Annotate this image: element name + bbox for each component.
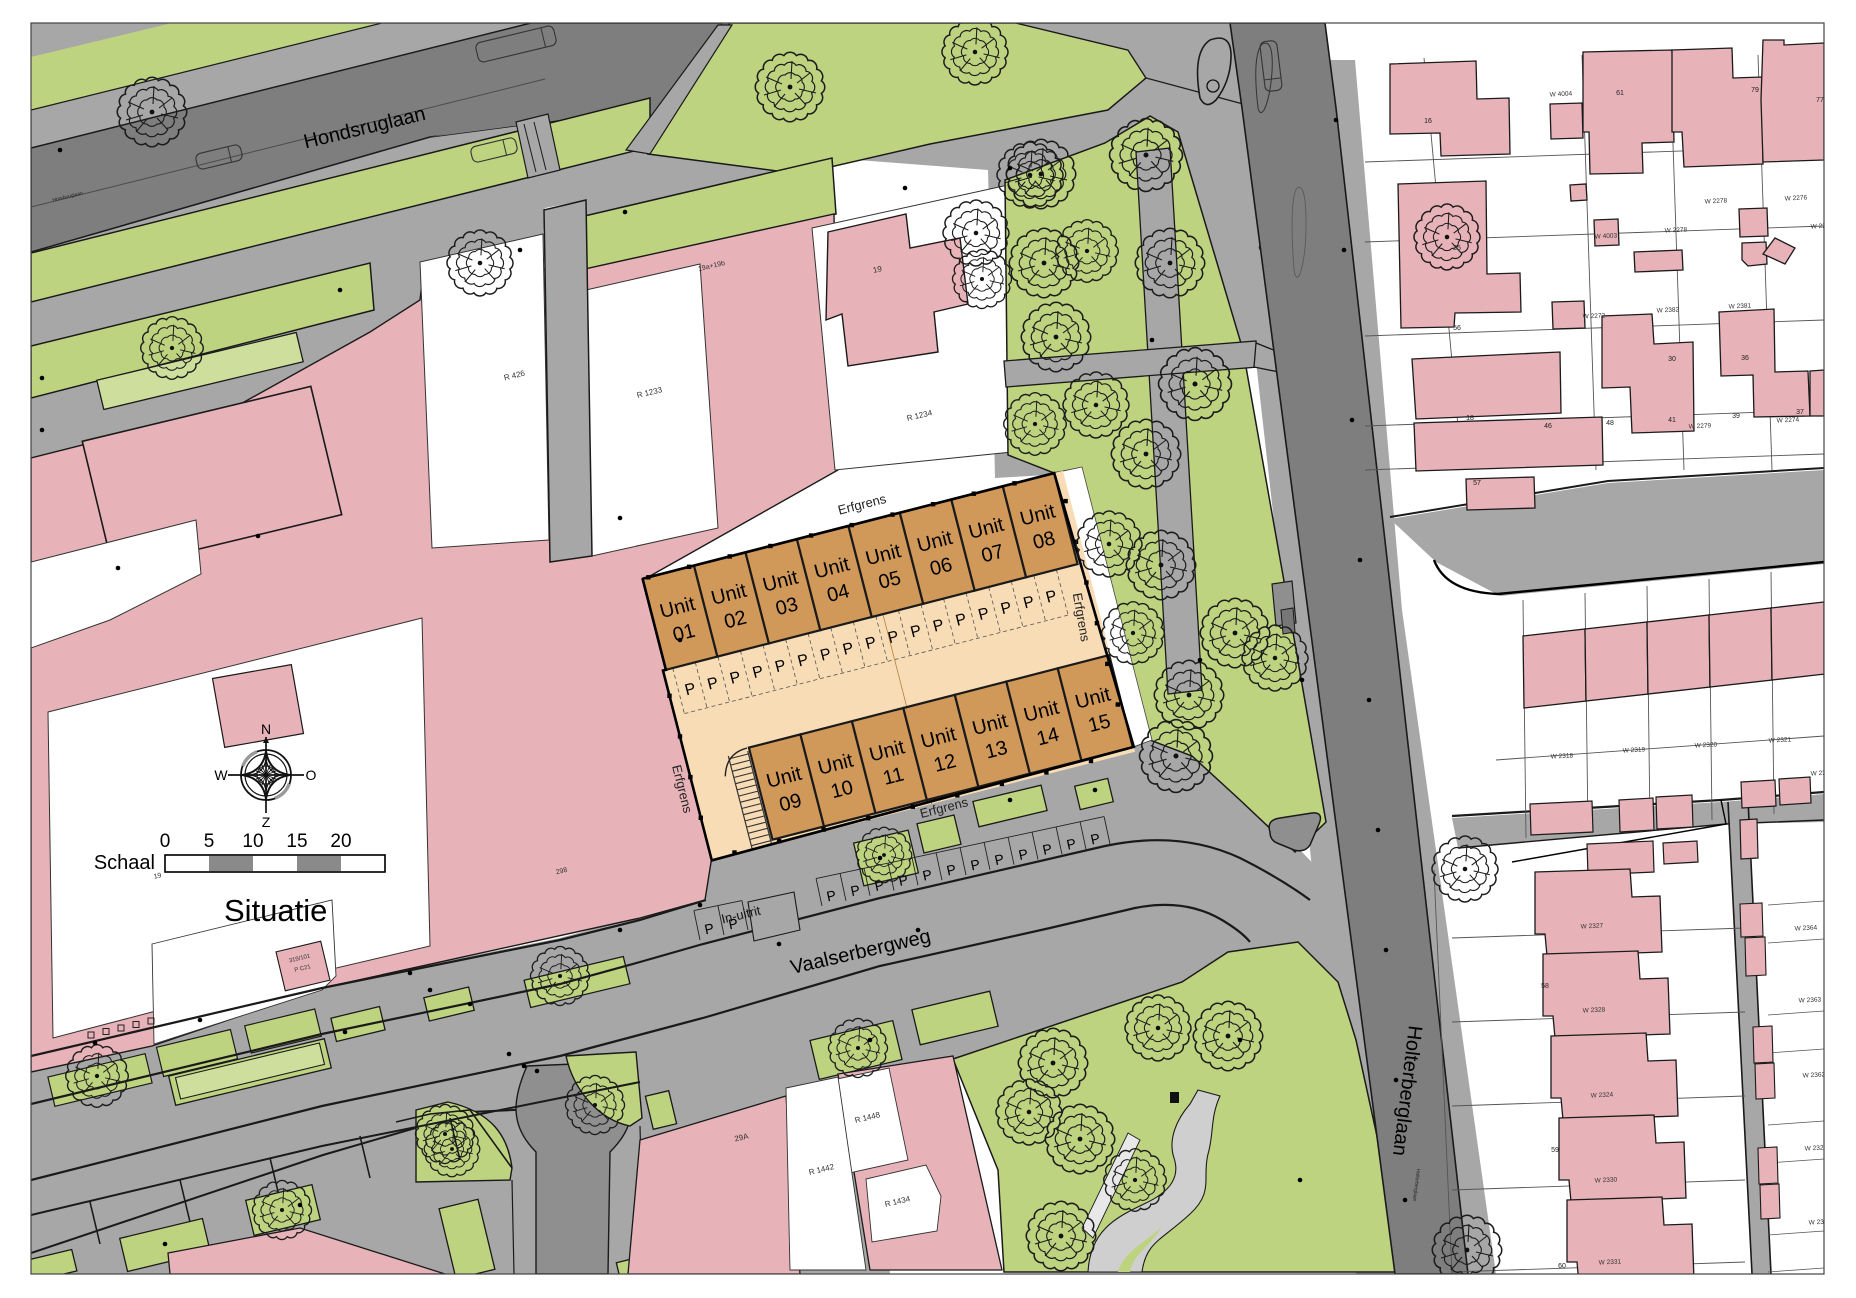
svg-text:W 2330: W 2330 [1595, 1176, 1618, 1184]
svg-text:W 2320: W 2320 [1695, 741, 1718, 749]
svg-text:20: 20 [330, 831, 351, 852]
svg-text:W 4003: W 4003 [1595, 232, 1618, 240]
svg-text:61: 61 [1616, 90, 1624, 97]
svg-text:Situatie: Situatie [224, 893, 327, 928]
svg-text:30: 30 [1668, 356, 1676, 363]
svg-text:W 2364: W 2364 [1795, 924, 1818, 932]
svg-text:79: 79 [1751, 87, 1759, 94]
svg-text:W: W [214, 767, 228, 783]
svg-text:57: 57 [1473, 480, 1481, 487]
svg-text:36: 36 [1741, 355, 1749, 362]
svg-text:W 2274: W 2274 [1777, 416, 1800, 424]
svg-text:W 2319: W 2319 [1623, 746, 1646, 754]
svg-text:W 2276: W 2276 [1785, 194, 1808, 202]
svg-text:W 2321: W 2321 [1769, 736, 1792, 744]
svg-text:W 2327: W 2327 [1581, 922, 1604, 930]
svg-text:W 2324: W 2324 [1591, 1091, 1614, 1099]
svg-text:Schaal: Schaal [94, 852, 155, 874]
svg-text:W 2279: W 2279 [1689, 422, 1712, 430]
svg-text:58: 58 [1541, 983, 1549, 990]
svg-text:W 2318: W 2318 [1551, 752, 1574, 760]
svg-text:46: 46 [1544, 423, 1552, 430]
svg-text:N: N [261, 721, 271, 737]
svg-text:15: 15 [286, 831, 307, 852]
svg-text:W 2363: W 2363 [1799, 996, 1822, 1004]
svg-text:10: 10 [242, 831, 263, 852]
svg-text:W 2328: W 2328 [1583, 1006, 1606, 1014]
svg-text:77: 77 [1816, 97, 1824, 104]
svg-text:39: 39 [1732, 413, 1740, 420]
svg-text:W 2382: W 2382 [1657, 306, 1680, 314]
svg-text:O: O [306, 767, 317, 783]
svg-text:5: 5 [204, 831, 215, 852]
svg-text:Z: Z [262, 814, 271, 830]
svg-text:W 4004: W 4004 [1550, 90, 1573, 98]
svg-text:W 2381: W 2381 [1729, 302, 1752, 310]
svg-text:W 2272: W 2272 [1583, 312, 1606, 320]
svg-text:W 2278: W 2278 [1665, 226, 1688, 234]
svg-text:48: 48 [1606, 420, 1614, 427]
svg-text:25: 25 [1453, 245, 1461, 252]
svg-text:56: 56 [1453, 325, 1461, 332]
svg-text:59: 59 [1551, 1147, 1559, 1154]
svg-text:W 2362: W 2362 [1803, 1071, 1826, 1079]
svg-text:16: 16 [1424, 118, 1432, 125]
svg-text:18: 18 [1466, 415, 1474, 422]
svg-text:0: 0 [160, 831, 171, 852]
svg-text:60: 60 [1558, 1263, 1566, 1270]
svg-text:37: 37 [1796, 409, 1804, 416]
svg-text:W 2278: W 2278 [1705, 197, 1728, 205]
svg-text:W 2331: W 2331 [1599, 1258, 1622, 1266]
svg-text:41: 41 [1668, 417, 1676, 424]
